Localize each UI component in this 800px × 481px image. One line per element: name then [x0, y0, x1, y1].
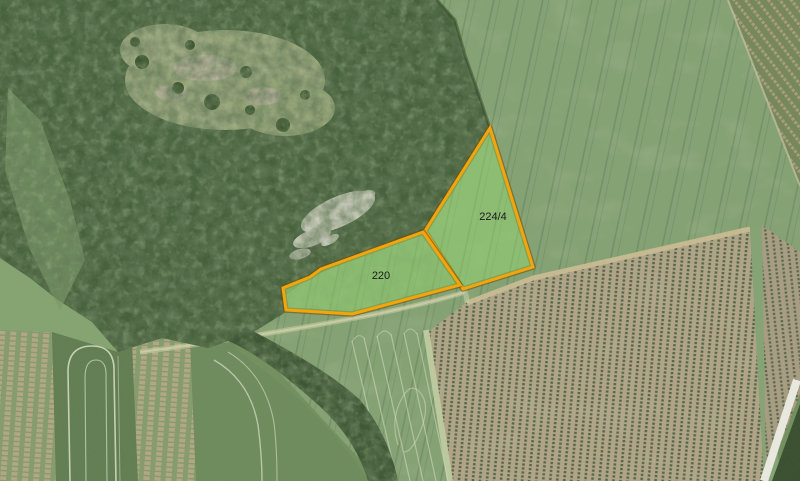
- map-viewport[interactable]: 224/4 220: [0, 0, 800, 481]
- aerial-map-image[interactable]: 224/4 220: [0, 0, 800, 481]
- parcel-220-label: 220: [372, 270, 390, 282]
- parcel-224-4-label: 224/4: [479, 211, 507, 223]
